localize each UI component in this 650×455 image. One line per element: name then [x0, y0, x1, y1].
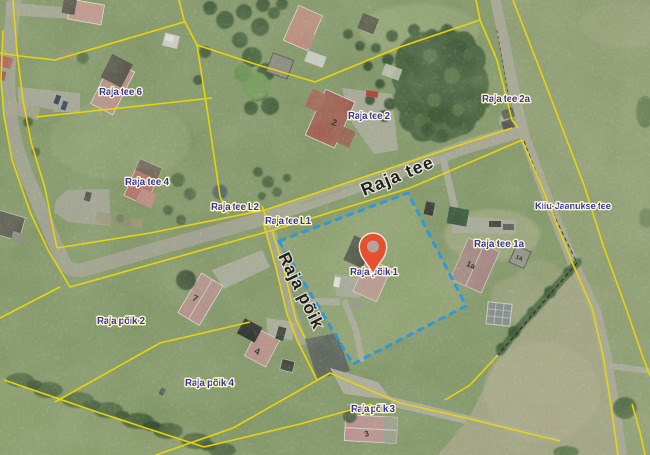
svg-text:Raja tee 1a: Raja tee 1a	[474, 239, 524, 250]
svg-text:Raja tee 4: Raja tee 4	[125, 177, 169, 188]
svg-text:Raja põik 4: Raja põik 4	[185, 378, 234, 389]
svg-text:Kiiu-Jaanukse tee: Kiiu-Jaanukse tee	[535, 201, 611, 212]
svg-text:Raja tee L2: Raja tee L2	[211, 202, 259, 213]
svg-text:Raja põik 3: Raja põik 3	[351, 404, 395, 415]
svg-text:Raja tee L1: Raja tee L1	[265, 216, 311, 227]
svg-text:Raja tee 6: Raja tee 6	[99, 87, 142, 98]
svg-text:Raja põik 2: Raja põik 2	[97, 316, 145, 327]
svg-text:Raja tee 2a: Raja tee 2a	[482, 94, 530, 105]
svg-text:Raja tee 2: Raja tee 2	[348, 111, 390, 122]
